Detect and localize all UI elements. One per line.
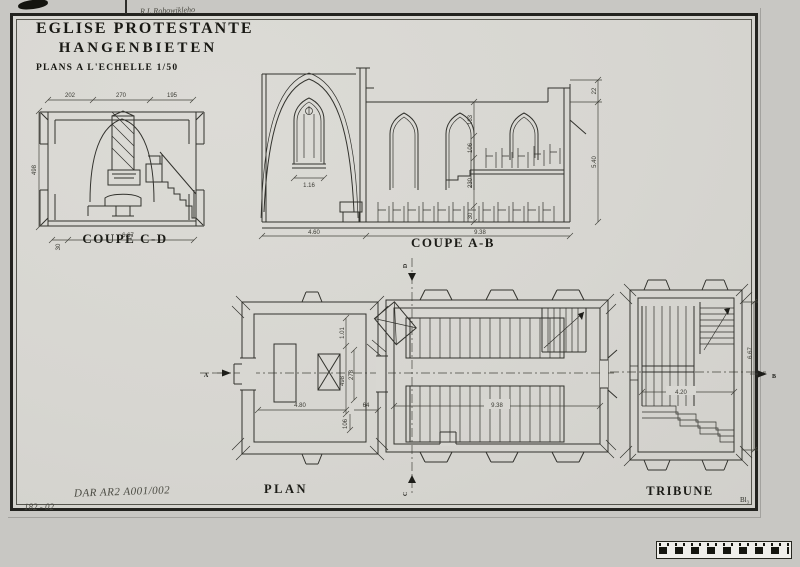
dim-30: 30 — [468, 212, 474, 219]
dim-540: 5.40 — [592, 156, 598, 168]
title-line3: PLANS A L'ECHELLE 1/50 — [36, 63, 240, 73]
dim-195: 195 — [167, 93, 178, 99]
handwritten-top-note: R.L.Rohowikleho — [140, 5, 195, 16]
plan-tower-linework — [232, 292, 388, 464]
coupe-cd-linework — [40, 111, 204, 226]
marker-c: C — [403, 492, 409, 496]
ruler-cm-cells — [659, 547, 789, 554]
dim-101: 1.01 — [340, 327, 346, 339]
marker-d-arrow — [408, 273, 416, 281]
dim-498: 498 — [32, 164, 38, 175]
handwritten-corner-number: 182 - 02 — [24, 502, 54, 512]
marker-b-arrow — [758, 371, 767, 378]
title-line1: EGLISE PROTESTANTE — [36, 20, 240, 38]
marker-a-arrow — [222, 370, 231, 377]
dim-106: 106 — [468, 142, 474, 153]
dim-460: 4.60 — [308, 230, 320, 236]
sheet-bottom-edge — [8, 517, 761, 518]
marker-d: D — [403, 263, 409, 268]
marker-a: A — [204, 373, 209, 379]
dim-498: 498 — [340, 375, 346, 386]
dim-116: 1.16 — [303, 183, 315, 189]
coupe-ab-drawing: 163 106 230 30 22 5.40 1.16 4.60 9.38 — [254, 60, 606, 258]
marker-b: B — [772, 374, 776, 380]
plan-dimensions: 1.01 498 278 4.80 64 106 9.38 — [255, 315, 603, 433]
dim-163: 163 — [468, 114, 474, 125]
dim-278: 278 — [349, 369, 355, 380]
coupe-ab-label: COUPE A-B — [368, 235, 538, 251]
scale-ruler — [656, 541, 792, 559]
dim-106: 106 — [343, 418, 349, 429]
coupe-cd-drawing: 202 270 195 498 6.67 30 — [28, 90, 244, 252]
tribune-label: TRIBUNE — [632, 484, 728, 499]
tape-mark — [18, 0, 49, 11]
coupe-cd-dimensions: 202 270 195 498 6.67 30 — [32, 93, 197, 250]
tribune-dimensions: 4.20 6.67 — [639, 299, 758, 453]
plan-section-lines — [200, 258, 614, 494]
dim-667-tribune: 6.67 — [748, 347, 754, 359]
dim-270: 270 — [116, 93, 127, 99]
dim-202: 202 — [65, 93, 76, 99]
tribune-drawing: 4.20 6.67 B — [608, 258, 800, 488]
coupe-cd-label: COUPE C-D — [40, 231, 210, 247]
coupe-ab-dimensions: 163 106 230 30 22 5.40 1.16 4.60 9.38 — [259, 77, 602, 239]
archive-photo-of-architectural-drawing: EGLISE PROTESTANTE HANGENBIETEN PLANS A … — [0, 0, 800, 567]
dim-480: 4.80 — [294, 403, 306, 409]
plan-label: PLAN — [264, 482, 308, 497]
tribune-linework — [620, 280, 752, 470]
ruler-fine-ticks — [659, 543, 789, 546]
title-line2: HANGENBIETEN — [36, 40, 240, 57]
plan-drawing: 1.01 498 278 4.80 64 106 9.38 A D C — [196, 254, 620, 500]
title-block: EGLISE PROTESTANTE HANGENBIETEN PLANS A … — [36, 20, 240, 73]
marker-c-arrow — [408, 475, 416, 483]
coupe-ab-linework — [261, 68, 586, 228]
dim-22: 22 — [592, 87, 598, 94]
dim-420: 4.20 — [675, 390, 687, 396]
plan-nave-linework — [367, 290, 617, 462]
dim-938-plan: 9.38 — [491, 403, 503, 409]
dim-64: 64 — [363, 403, 370, 409]
dim-230: 230 — [468, 177, 474, 188]
sheet-number-mark: Bl₃ — [740, 496, 749, 504]
fold-mark — [125, 0, 127, 14]
